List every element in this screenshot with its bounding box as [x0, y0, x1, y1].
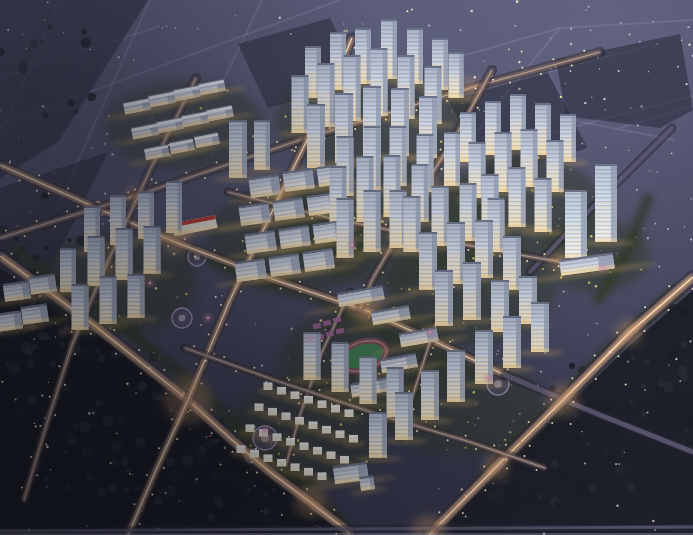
masterplan-rendering: [0, 0, 693, 535]
aerial-night-scene: [0, 0, 693, 535]
corner-shadow-bottomleft: [0, 0, 693, 535]
atmosphere-layer: [0, 0, 693, 535]
